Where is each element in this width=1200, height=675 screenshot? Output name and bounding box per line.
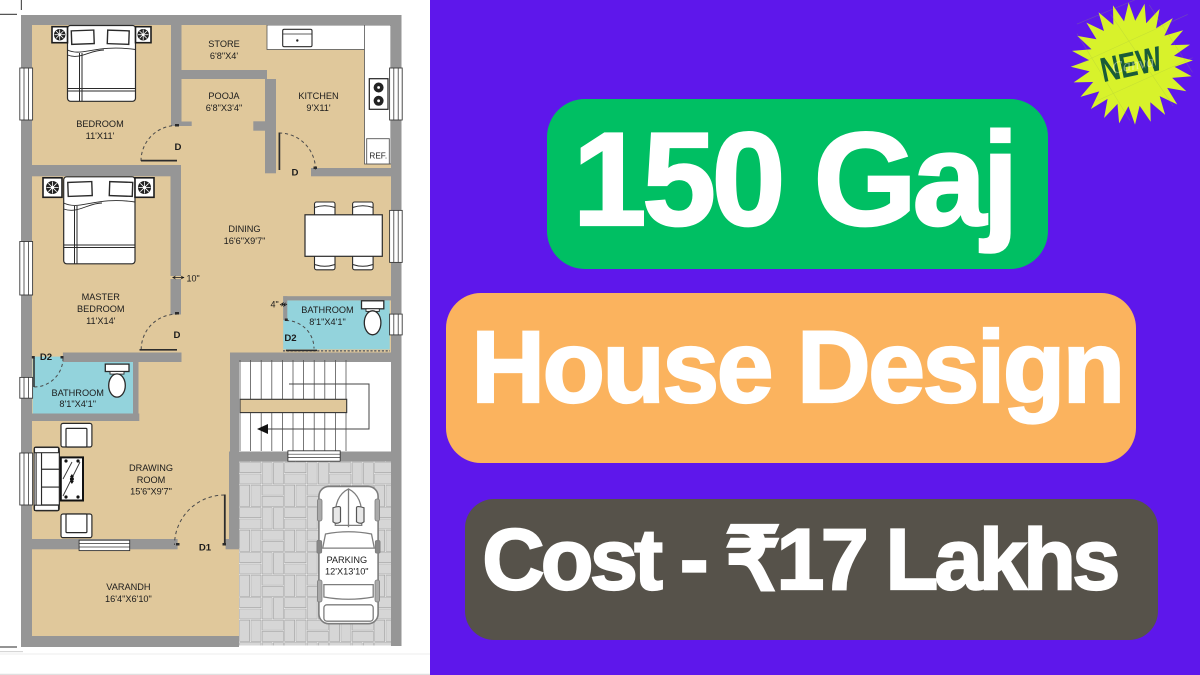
svg-text:10": 10" [187,274,200,284]
svg-text:4": 4" [271,300,279,310]
svg-text:ROOM: ROOM [137,475,166,485]
svg-text:KITCHEN: KITCHEN [298,91,338,101]
svg-text:12'X13'10": 12'X13'10" [325,567,369,577]
svg-text:D: D [175,142,182,153]
svg-text:POOJA: POOJA [208,91,240,101]
svg-text:9'X11': 9'X11' [306,103,331,113]
svg-text:BEDROOM: BEDROOM [76,119,123,129]
svg-text:11'X11': 11'X11' [86,131,115,141]
svg-text:D: D [292,168,299,179]
svg-text:DINING: DINING [228,224,260,234]
svg-text:BATHROOM: BATHROOM [51,388,103,398]
svg-text:STORE: STORE [208,39,239,49]
svg-text:15'6"X9'7": 15'6"X9'7" [130,487,172,497]
svg-text:BEDROOM: BEDROOM [77,304,124,314]
svg-text:6'8"X3'4": 6'8"X3'4" [206,103,243,113]
svg-text:VARANDH: VARANDH [106,582,150,592]
svg-text:BATHROOM: BATHROOM [301,305,353,315]
svg-text:D: D [174,330,181,341]
svg-text:D1: D1 [199,543,212,554]
svg-text:PARKING: PARKING [326,555,367,565]
svg-text:D2: D2 [284,333,296,344]
svg-text:DRAWING: DRAWING [129,463,173,473]
svg-text:8'1"X4'1": 8'1"X4'1" [309,317,346,327]
svg-text:11'X14': 11'X14' [86,316,116,326]
svg-text:8'1"X4'1": 8'1"X4'1" [59,399,96,409]
svg-text:16'4"X6'10": 16'4"X6'10" [105,594,152,604]
svg-text:REF.: REF. [369,152,387,161]
svg-text:MASTER: MASTER [82,292,121,302]
svg-text:6'8"X4': 6'8"X4' [210,51,238,61]
svg-text:D2: D2 [40,352,52,363]
svg-text:16'6"X9'7": 16'6"X9'7" [224,236,266,246]
